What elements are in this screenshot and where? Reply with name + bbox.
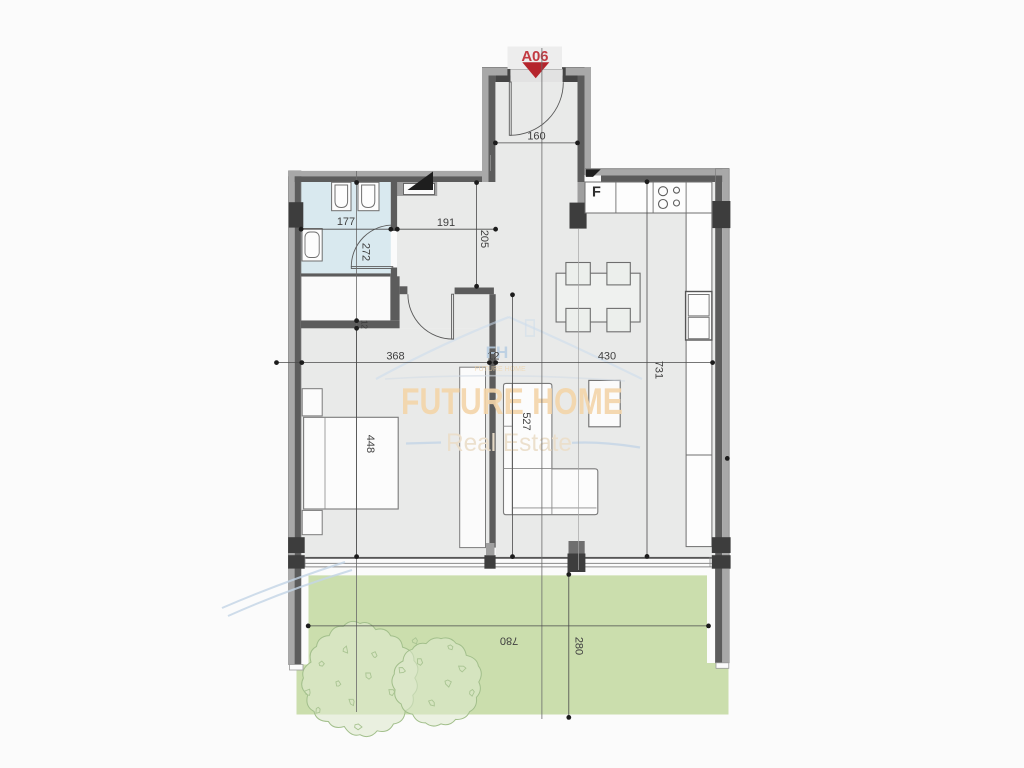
svg-text:12: 12 xyxy=(360,320,369,329)
svg-text:FUTURE HOME: FUTURE HOME xyxy=(474,366,526,373)
svg-text:368: 368 xyxy=(386,351,404,363)
svg-text:280: 280 xyxy=(573,637,585,655)
svg-text:205: 205 xyxy=(478,230,490,248)
svg-text:448: 448 xyxy=(364,435,376,453)
svg-text:Real Estate: Real Estate xyxy=(446,429,572,457)
svg-text:527: 527 xyxy=(520,412,532,430)
svg-text:F: F xyxy=(592,185,601,201)
svg-text:177: 177 xyxy=(337,216,355,228)
svg-text:191: 191 xyxy=(437,217,455,229)
svg-text:272: 272 xyxy=(360,243,372,261)
svg-text:780: 780 xyxy=(500,635,518,647)
svg-text:FUTURE HOME: FUTURE HOME xyxy=(401,381,623,422)
svg-text:160: 160 xyxy=(527,131,545,143)
svg-text:430: 430 xyxy=(598,351,616,363)
svg-text:731: 731 xyxy=(653,361,665,379)
